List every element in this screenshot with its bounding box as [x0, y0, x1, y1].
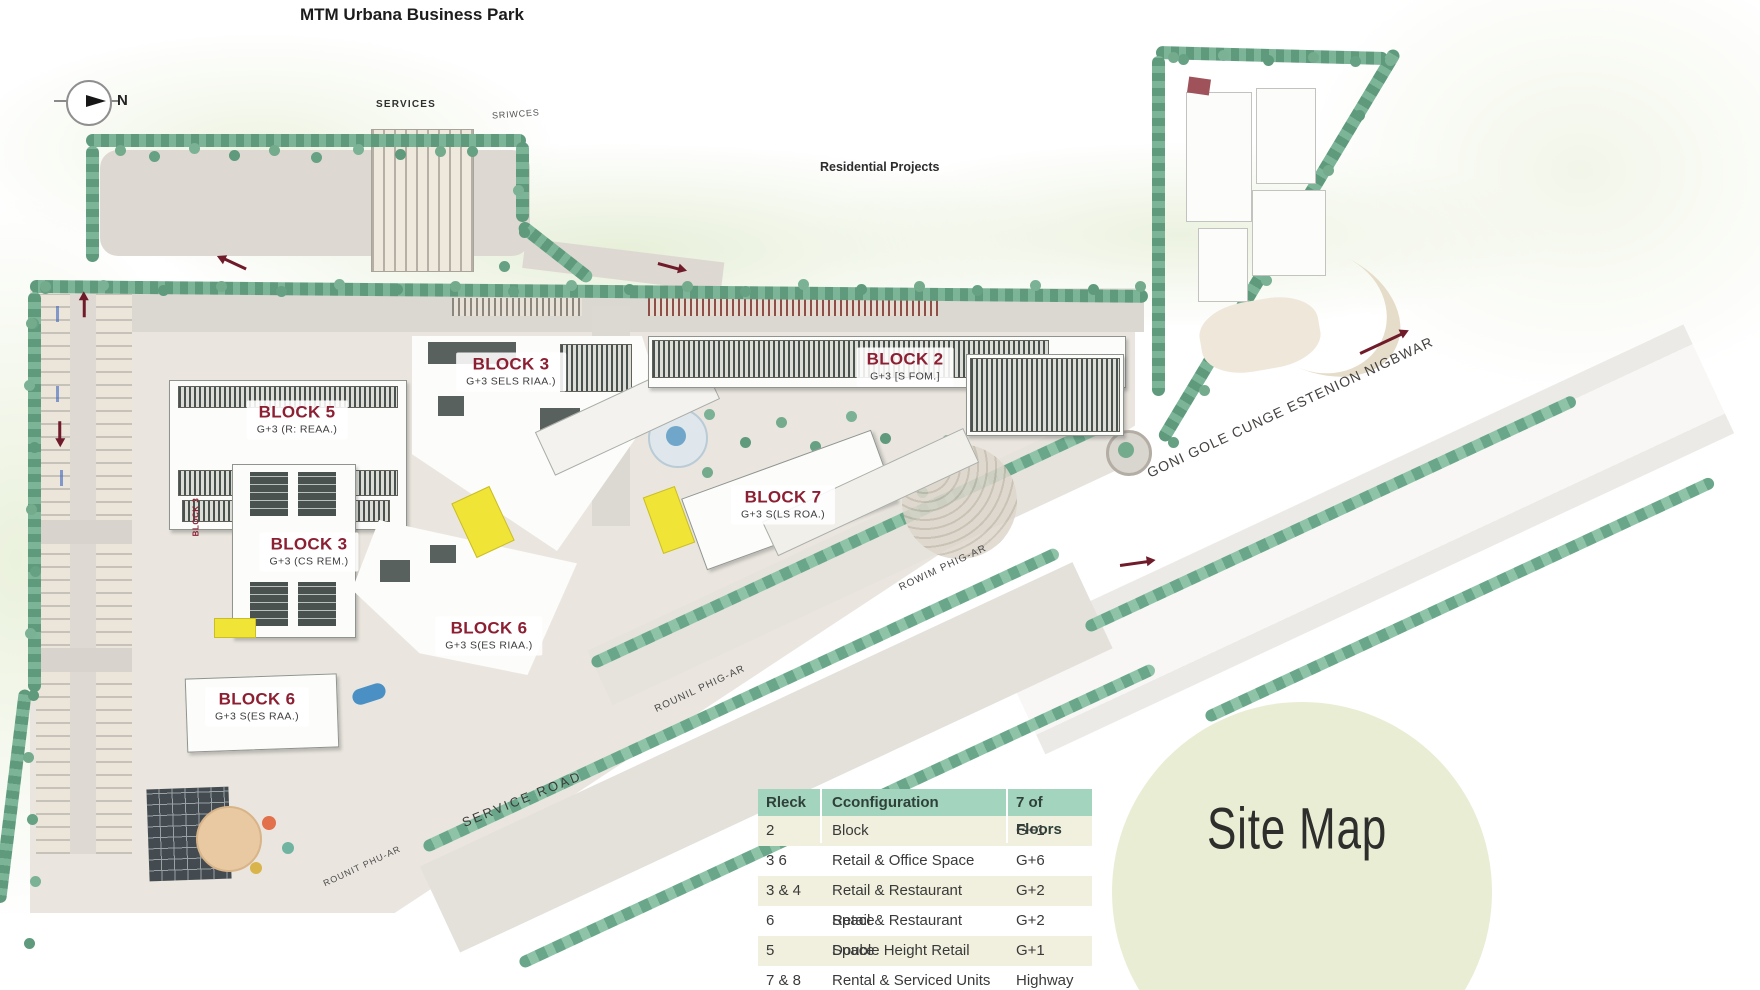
block-3-left-label: BLOCK 3 G+3 (CS REM.) [259, 533, 358, 572]
compass-north-label: N [117, 92, 128, 109]
yellow-highlight-3 [214, 618, 256, 638]
west-cross-road-2 [36, 648, 132, 672]
residential-projects-label: Residential Projects [820, 160, 940, 174]
block-name: BLOCK 3 [269, 535, 348, 555]
playground-dot-2 [282, 842, 294, 854]
block-3-top-label: BLOCK 3 G+3 SELS RIAA.) [456, 353, 566, 392]
block-subtitle: G+3 (R: REAA.) [257, 424, 338, 436]
hedge-parcel-top [1156, 46, 1388, 65]
road-arrow-icon-5 [59, 421, 62, 439]
road-arrow-icon-2 [224, 258, 247, 270]
cell-configuration: Retail & Office Space [822, 846, 1008, 876]
hedge-southwest-boundary [0, 689, 32, 904]
block-3-roof-strips [560, 344, 632, 392]
block-6-mid-label: BLOCK 6 G+3 S(ES RIAA.) [435, 617, 542, 656]
block-subtitle: G+3 S(ES RAA.) [215, 711, 299, 723]
fountain-pool [666, 426, 686, 446]
parcel-building-1 [1186, 92, 1252, 222]
cell-floors: G+6 [1008, 846, 1092, 876]
west-parking-lane [70, 294, 96, 854]
block-subtitle: G+3 SELS RIAA.) [466, 376, 556, 388]
vertical-block-label: BLOCK 3 [192, 498, 201, 537]
tree-cluster-boundary [40, 281, 51, 292]
road-arrow-icon-4 [83, 299, 86, 317]
tree-cluster-west [26, 318, 37, 329]
blue-annotation-1 [56, 306, 59, 322]
site-map-canvas: N MTM Urbana Business Park SERVICES SRIW… [0, 0, 1760, 990]
table-row: 3 & 4 Retail & Restaurant Space G+2 [758, 876, 1092, 906]
block-name: BLOCK 5 [257, 403, 338, 423]
cell-floors: G+1 [1008, 936, 1092, 966]
roundabout-green [1118, 442, 1134, 458]
block-3-roof-unit-2 [438, 396, 464, 416]
block-3-left-roof-4 [298, 582, 336, 626]
block-5-label: BLOCK 5 G+3 (R: REAA.) [247, 401, 348, 440]
block-3-left-roof-1 [250, 472, 288, 516]
block-2-label: BLOCK 2 G+3 [S FOM.] [857, 348, 954, 387]
playground-dot-1 [262, 816, 276, 830]
block-6-roof-unit-2 [430, 545, 456, 563]
blue-annotation-2 [56, 386, 59, 402]
cell-floors: Highway [1008, 966, 1092, 990]
block-name: BLOCK 6 [215, 690, 299, 710]
playground-dot-3 [250, 862, 262, 874]
services-label: SERVICES [376, 99, 436, 110]
hedge-west-boundary [28, 292, 41, 692]
services-label-small: SRIWCES [492, 107, 540, 120]
table-row: 6 Retail & Restaurant Space G+2 [758, 906, 1092, 936]
cell-block: 2 [758, 816, 822, 846]
hedge-parcel-left [1152, 56, 1165, 396]
block-subtitle: G+3 [S FOM.] [867, 371, 944, 383]
block-7-label: BLOCK 7 G+3 S(LS ROA.) [731, 486, 835, 525]
tree-cluster-parcel [1168, 52, 1179, 63]
compass-needle-icon [86, 95, 106, 107]
cell-block: 7 & 8 [758, 966, 822, 990]
road-arrow-icon-1 [1120, 560, 1148, 566]
cell-block: 5 [758, 936, 822, 966]
parcel-building-2 [1256, 88, 1316, 184]
block-6-roof-unit-1 [380, 560, 410, 582]
blue-annotation-3 [60, 470, 63, 486]
cell-block: 3 6 [758, 846, 822, 876]
block-subtitle: G+3 S(ES RIAA.) [445, 640, 532, 652]
block-name: BLOCK 3 [466, 355, 556, 375]
block-2-roof-strips-east [970, 358, 1120, 432]
block-subtitle: G+3 (CS REM.) [269, 556, 348, 568]
table-row: 5 Double Height Retail G+1 [758, 936, 1092, 966]
block-subtitle: G+3 S(LS ROA.) [741, 509, 825, 521]
west-cross-road-1 [36, 520, 132, 544]
table-row: 2 Block G+1 [758, 816, 1092, 846]
cell-configuration: Double Height Retail [822, 936, 1008, 966]
tree-cluster-top [115, 145, 126, 156]
site-map-title: Site Map [1207, 796, 1387, 863]
block-name: BLOCK 2 [867, 350, 944, 370]
cell-configuration: Block [822, 816, 1008, 846]
block-6-low-label: BLOCK 6 G+3 S(ES RAA.) [205, 688, 309, 727]
block-3-left-roof-2 [298, 472, 336, 516]
hedge-loop-top [86, 134, 526, 147]
table-row: 7 & 8 Rental & Serviced Units Highway [758, 966, 1092, 990]
cell-configuration: Rental & Serviced Units [822, 966, 1008, 990]
cell-floors: G+1 [1008, 816, 1092, 846]
legend-header-row: Rleck Cconfiguration 7 of Floors [758, 789, 1092, 816]
parcel-red-roof [1187, 77, 1211, 96]
services-parking-rows [371, 129, 474, 272]
page-title: MTM Urbana Business Park [300, 5, 524, 25]
parking-hatch-gray [452, 298, 582, 316]
legend-table: Rleck Cconfiguration 7 of Floors 2 Block… [758, 789, 1092, 990]
hedge-loop-right [516, 142, 529, 222]
block-name: BLOCK 6 [445, 619, 532, 639]
table-row: 3 6 Retail & Office Space G+6 [758, 846, 1092, 876]
block-name: BLOCK 7 [741, 488, 825, 508]
hedge-loop-left [86, 146, 99, 262]
